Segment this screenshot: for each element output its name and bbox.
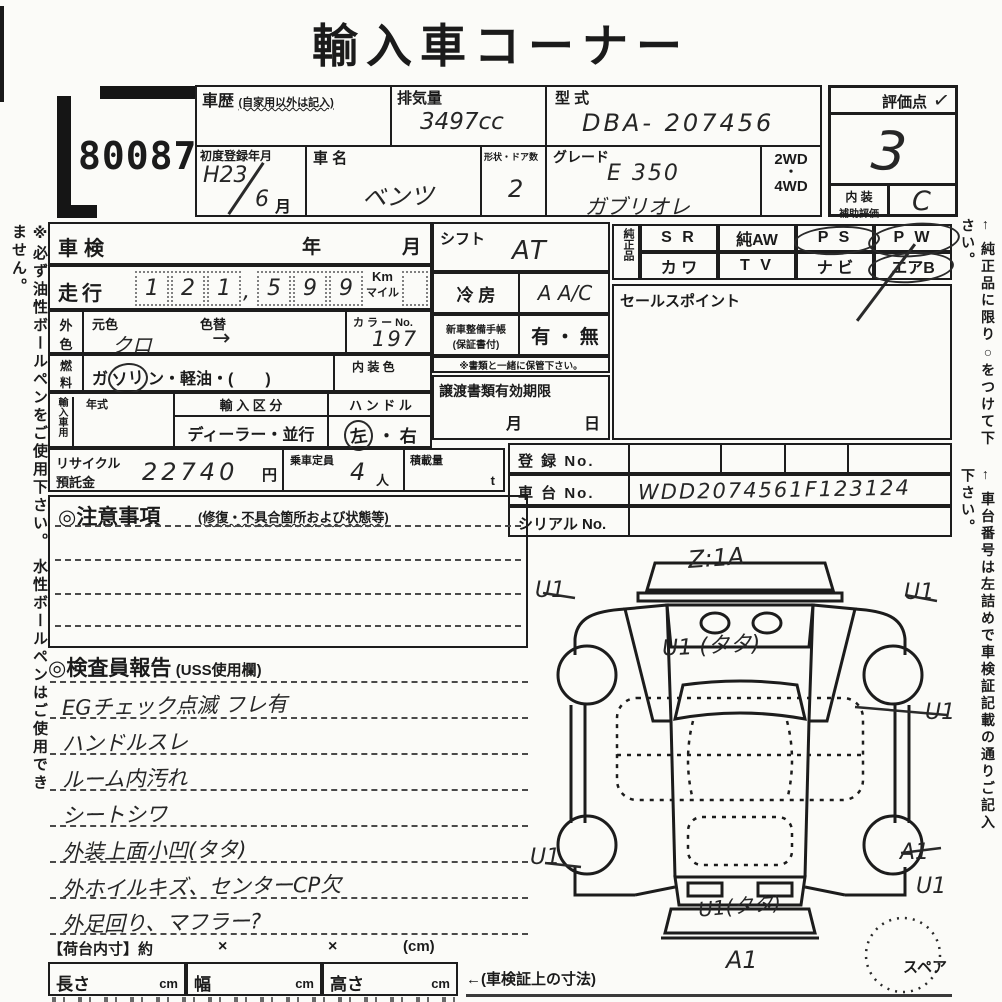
sales-point-label: セールスポイント: [620, 290, 740, 311]
recycle-value: 22740: [142, 458, 238, 486]
transfer-day: 日: [584, 410, 600, 434]
displacement-value: 3497cc: [420, 109, 504, 135]
mileage-digit: 9: [329, 271, 363, 306]
fuel-close: ): [233, 371, 270, 388]
shaken-month: 月: [402, 232, 421, 259]
field-transfer-docs: 譲渡書類有効期限 月 日: [432, 375, 610, 440]
serial-no-label: シリアル No.: [518, 513, 606, 534]
model-code-label: 型 式: [555, 90, 589, 107]
mileage-unit-km: Km: [366, 269, 399, 284]
dim-width-label: 幅: [194, 970, 211, 995]
first-reg-month-label: 月: [275, 193, 291, 217]
field-shift: シフト AT: [432, 222, 610, 272]
interior-score-value: C: [912, 186, 931, 217]
genuine-label-cell: 純正品: [612, 224, 640, 280]
edge-mark: [0, 6, 4, 102]
import-division-value: ディーラー・並行: [175, 421, 327, 445]
field-chassis-no: 車 台 No. WDD2074561F123124: [508, 474, 952, 506]
transfer-month: 月: [506, 410, 522, 434]
right-margin-note-bottom: ← 車台番号は左詰めで車検証記載の通りご記入下さい。: [958, 468, 998, 848]
booklet-label-2: (保証書付): [434, 336, 518, 351]
history-note: (自家用以外は記入): [238, 97, 333, 109]
field-history: 車歴 (自家用以外は記入): [195, 85, 392, 147]
inspector-header: ◎検査員報告 (USS使用欄): [48, 652, 262, 682]
history-label: 車歴: [202, 93, 234, 110]
inspector-rule: [50, 789, 528, 791]
model-code-value: DBA- 207456: [582, 109, 774, 137]
left-margin-note: ※必ず油性ボールペンをご使用下さい。 水性ボールペンはご使用できません。: [8, 224, 50, 810]
diagram-mark-rear-right-u: U1: [916, 874, 946, 899]
lot-corner-left: [57, 96, 71, 218]
diagram-mark-windshield: U1 (タタ): [661, 625, 761, 662]
field-booklet: 新車整備手帳 (保証書付) 有 ・ 無: [432, 314, 610, 356]
field-first-registration: 初度登録年月 H23 6 月: [195, 145, 307, 217]
right-margin-note-top: ← 純正品に限り○をつけて下さい。: [958, 218, 998, 463]
body-doors-label: 形状・ドア数: [484, 152, 538, 162]
dim-width-cell: 幅 cm: [186, 962, 322, 996]
keep-note-text: ※書類と一緒に保管下さい。: [459, 358, 582, 372]
field-recycle: リサイクル 預託金 22740 円 乗車定員 4 人 積載量 t: [48, 448, 505, 492]
booklet-label-1: 新車整備手帳: [434, 321, 518, 336]
drive-4wd: 4WD: [762, 178, 820, 195]
grade-line2: ガブリオレ: [585, 191, 690, 221]
dim-height-unit: cm: [431, 976, 450, 991]
handle-dot: ・: [378, 427, 395, 446]
inspector-subtitle: (USS使用欄): [176, 662, 262, 679]
capacity-label: 乗車定員: [290, 452, 334, 468]
inspector-rule: [50, 681, 528, 683]
genuine-leather: カ ワ: [640, 252, 718, 280]
mileage-digit: 9: [293, 271, 327, 306]
recycle-label-2: 預託金: [56, 472, 120, 491]
field-fuel: 燃 料 ガソリン・軽油・( ) 内 装 色: [48, 354, 432, 392]
score-check: ✓: [932, 87, 952, 113]
diagram-mark-front-right: U1: [904, 580, 934, 605]
capacity-unit: 人: [376, 470, 389, 489]
diagram-mark-bottom: A1: [726, 946, 758, 974]
fuel-post: ン・軽油・(: [148, 371, 233, 388]
fuel-circled: ソリ: [107, 361, 150, 396]
mileage-digit: 1: [135, 271, 169, 306]
color-change-value: →: [212, 326, 230, 351]
color-label-2: 色: [50, 334, 82, 353]
field-grade: グレード E 350 ガブリオレ: [545, 145, 762, 217]
diagram-mark-rear-left: U1: [530, 845, 560, 870]
field-mileage: 走行 1 2 1 , 5 9 9 Km マイル: [48, 265, 432, 310]
genuine-label: 純正品: [620, 228, 636, 280]
inspector-rule: [50, 717, 528, 719]
cargo-times-2: ×: [328, 938, 337, 956]
mileage-units: Km マイル: [366, 269, 399, 300]
mileage-label: 走行: [58, 277, 106, 306]
chassis-no-value: WDD2074561F123124: [638, 476, 911, 505]
diagram-mark-front-left: U1: [535, 578, 565, 603]
dim-height-cell: 高さ cm: [322, 962, 458, 996]
fuel-pre: ガ: [92, 371, 108, 388]
field-displacement: 排気量 3497cc: [390, 85, 547, 147]
field-model-code: 型 式 DBA- 207456: [545, 85, 822, 147]
chassis-no-label: 車 台 No.: [518, 482, 595, 503]
import-label: 輸入車用: [54, 397, 74, 447]
mileage-digit: 5: [257, 271, 291, 306]
diagram-mark-rear-right-a: A1: [900, 840, 929, 865]
lot-corner-top: [100, 86, 196, 99]
fuel-label-2: 料: [50, 374, 82, 391]
handle-label: ハ ン ド ル: [329, 394, 432, 417]
lot-corner-bottom: [57, 205, 97, 218]
caution-box: ◎注意事項 (修復・不具合箇所および状態等): [48, 495, 528, 648]
caution-subtitle: (修復・不具合箇所および状態等): [198, 507, 389, 526]
lot-number: 80087: [78, 134, 197, 178]
shaken-year: 年: [302, 232, 321, 259]
field-ac: 冷 房 A A/C: [432, 272, 610, 314]
genuine-navi: ナ ビ: [796, 252, 874, 280]
drive-dot: ・: [762, 168, 820, 176]
capacity-value: 4: [350, 458, 365, 486]
shift-value: AT: [512, 236, 548, 266]
field-import: 輸入車用 年式 輸 入 区 分 ディーラー・並行 ハ ン ド ル 左 ・ 右: [48, 392, 432, 448]
recycle-unit: 円: [262, 464, 277, 485]
grade-label: グレード: [553, 149, 609, 165]
field-exterior-color: 外 色 元色 クロ 色替 → カ ラ ー No. 197: [48, 310, 432, 354]
cargo-dims-line: 【荷台内寸】約 × × (cm): [48, 938, 608, 960]
ac-value: A A/C: [518, 274, 612, 312]
fuel-label-1: 燃: [50, 357, 82, 374]
dim-length-label: 長さ: [56, 970, 90, 995]
interior-label-2: 補助評価: [831, 205, 887, 220]
color-no-value: 197: [372, 327, 418, 351]
field-serial-no: シリアル No.: [508, 506, 952, 537]
body-doors-value: 2: [508, 175, 523, 203]
handle-right-value: 右: [400, 427, 417, 446]
score-value: 3: [869, 118, 910, 184]
shift-label: シフト: [440, 228, 485, 249]
mileage-unit-mile: マイル: [366, 284, 399, 300]
first-reg-year: H23: [203, 163, 248, 188]
field-body-doors: 形状・ドア数 2: [480, 145, 547, 217]
displacement-label: 排気量: [397, 90, 442, 107]
ac-label: 冷 房: [457, 281, 496, 306]
grade-line1: E 350: [607, 161, 680, 186]
load-label: 積載量: [410, 452, 443, 468]
diagram-mark-top: Z:1A: [687, 542, 745, 574]
field-shaken: 車検 年 月: [48, 222, 432, 265]
car-name-value: ベンツ: [361, 176, 434, 213]
dim-length-unit: cm: [159, 976, 178, 991]
mileage-digit: 1: [207, 271, 241, 306]
booklet-value: 有 ・ 無: [518, 316, 612, 354]
interior-score-label-cell: 内 装 補助評価: [828, 183, 890, 217]
truncated-row: [52, 997, 456, 1002]
color-label-1: 外: [50, 315, 82, 334]
sales-point-box: セールスポイント: [612, 284, 952, 440]
import-division-label: 輸 入 区 分: [175, 394, 327, 417]
inspector-rule: [50, 933, 528, 935]
dim-height-label: 高さ: [330, 970, 364, 995]
cargo-label: 【荷台内寸】約: [48, 938, 153, 959]
genuine-sr: S R: [640, 224, 718, 252]
transfer-label: 譲渡書類有効期限: [439, 381, 551, 401]
field-drive-type: 2WD ・ 4WD: [760, 145, 822, 217]
mileage-extra-cell: [402, 271, 428, 306]
inspector-rule: [50, 861, 528, 863]
diagram-mark-side-right: U1: [925, 700, 955, 725]
load-unit: t: [491, 473, 495, 488]
field-reg-no: 登 録 No.: [508, 443, 952, 474]
inspector-title: ◎検査員報告: [48, 657, 171, 680]
score-header: 評価点 ✓: [828, 85, 958, 115]
reg-no-label: 登 録 No.: [518, 450, 595, 471]
genuine-tv: T V: [718, 252, 796, 280]
import-year-label: 年式: [86, 396, 108, 412]
keep-note: ※書類と一緒に保管下さい。: [432, 356, 610, 373]
inspector-rule: [50, 897, 528, 899]
dim-width-unit: cm: [295, 976, 314, 991]
cargo-unit: (cm): [403, 938, 435, 955]
spare-label: スペア: [903, 956, 947, 977]
genuine-aw: 純AW: [718, 224, 796, 252]
cargo-times-1: ×: [218, 938, 227, 956]
inspector-rule: [50, 825, 528, 827]
recycle-label-1: リサイクル: [56, 453, 120, 472]
mileage-digit: 2: [171, 271, 205, 306]
car-name-label: 車 名: [313, 150, 347, 167]
car-diagram: [525, 545, 955, 1000]
auction-sheet: 輸入車コーナー ※必ず油性ボールペンをご使用下さい。 水性ボールペンはご使用でき…: [0, 0, 1002, 1002]
dim-length-cell: 長さ cm: [48, 962, 186, 996]
first-reg-month-digit: 6: [255, 187, 269, 212]
page-title: 輸入車コーナー: [0, 10, 1002, 76]
field-car-name: 車 名 ベンツ: [305, 145, 482, 217]
interior-label-1: 内 装: [831, 188, 887, 205]
shaken-label: 車検: [58, 232, 110, 261]
score-label: 評価点: [882, 91, 927, 112]
mileage-comma: ,: [243, 279, 255, 304]
inspector-rule: [50, 753, 528, 755]
interior-color-label: 内 装 色: [352, 358, 395, 375]
